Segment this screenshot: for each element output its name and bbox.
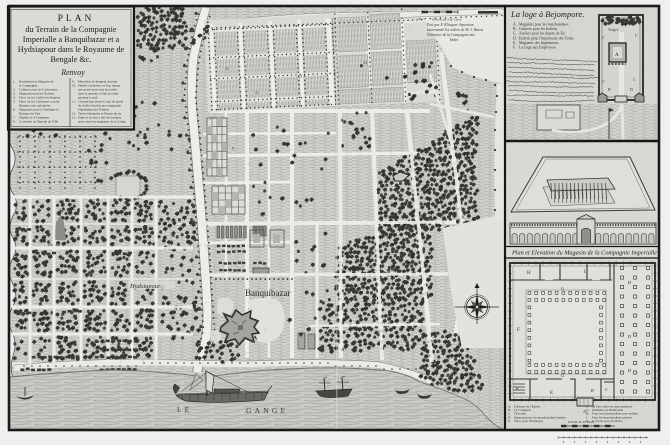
- svg-text:A.: A.: [513, 23, 517, 27]
- svg-text:assermenté les ordres de M. J.: assermenté les ordres de M. J. Baron: [427, 28, 483, 32]
- svg-text:C: C: [605, 387, 608, 392]
- svg-text:D: D: [630, 87, 633, 92]
- svg-text:F: F: [517, 328, 520, 333]
- svg-text:10.: 10.: [72, 84, 76, 88]
- svg-text:Corbanite ou Marché de Ville: Corbanite ou Marché de Ville: [19, 120, 59, 124]
- svg-text:PLAN: PLAN: [58, 14, 95, 24]
- svg-text:A: A: [615, 53, 619, 58]
- svg-text:E: E: [550, 391, 553, 396]
- svg-text:Ateliers pour les depots de Fe: Ateliers pour les depots de Fer: [519, 32, 566, 36]
- svg-text:Imperialle a Banquibazar et a: Imperialle a Banquibazar et a: [23, 35, 120, 44]
- svg-text:F.: F.: [513, 46, 516, 50]
- svg-text:La loge à Bejompore.: La loge à Bejompore.: [510, 9, 584, 19]
- svg-text:Echelle de 40 toises: Echelle de 40 toises: [567, 420, 595, 424]
- svg-text:GANGE: GANGE: [246, 406, 288, 415]
- svg-text:B: B: [591, 388, 594, 393]
- svg-text:Endroit pour l'imprimerie des: Endroit pour l'imprimerie des Toiles: [519, 36, 574, 40]
- svg-text:Cultures pour les Indiens: Cultures pour les Indiens: [519, 27, 558, 31]
- svg-text:Magazins des Imprimeurs: Magazins des Imprimeurs: [519, 41, 559, 45]
- svg-text:B.: B.: [513, 27, 517, 31]
- svg-text:11: 11: [225, 66, 229, 71]
- svg-text:Hydsiapour: Hydsiapour: [129, 283, 161, 290]
- svg-text:C.: C.: [513, 32, 517, 36]
- svg-text:10: 10: [185, 148, 189, 153]
- svg-text:13.: 13.: [72, 116, 76, 120]
- svg-text:D.: D.: [513, 36, 517, 40]
- svg-text:B: B: [608, 87, 611, 92]
- svg-text:14: 14: [363, 60, 367, 65]
- svg-text:Place pour Dechargez: Place pour Dechargez: [514, 419, 543, 423]
- svg-text:pour toute les magazins de la: pour toute les magazins de la Comp.: [78, 120, 126, 124]
- svg-text:Fait par F. Klinquer Arpenteur: Fait par F. Klinquer Arpenteur: [426, 23, 475, 27]
- svg-text:Hydsiapour dans le Royaume de: Hydsiapour dans le Royaume de: [18, 45, 125, 54]
- svg-text:le Sortie pour les Bales: le Sortie pour les Bales: [592, 419, 623, 423]
- svg-text:8.: 8.: [13, 120, 16, 124]
- svg-text:5.: 5.: [13, 100, 16, 104]
- svg-text:Verger: Verger: [608, 27, 619, 32]
- svg-text:Indes: Indes: [449, 38, 459, 42]
- svg-text:C: C: [602, 35, 605, 40]
- svg-text:Echelle de 4 au Lieue: Echelle de 4 au Lieue: [431, 18, 462, 22]
- svg-text:E.: E.: [513, 41, 516, 45]
- svg-text:1.: 1.: [13, 80, 16, 84]
- svg-text:11.: 11.: [72, 100, 76, 104]
- svg-text:Banquibazar: Banquibazar: [245, 288, 290, 298]
- svg-text:Magazins pour les marchandises: Magazins pour les marchandises: [519, 23, 569, 27]
- svg-text:du Terrain de la Compagnie: du Terrain de la Compagnie: [25, 25, 116, 34]
- svg-text:La Loge aux Employees: La Loge aux Employees: [519, 46, 557, 50]
- svg-text:C: C: [633, 77, 636, 82]
- svg-text:Plan et Elevation du Magasin d: Plan et Elevation du Magasin de la Compa…: [511, 250, 657, 257]
- svg-text:C: C: [635, 33, 638, 38]
- svg-text:LE: LE: [177, 405, 192, 414]
- svg-text:6.: 6.: [13, 108, 16, 112]
- svg-text:H: H: [527, 271, 531, 276]
- svg-text:Directeur de la Compagnie aux: Directeur de la Compagnie aux: [426, 33, 475, 37]
- svg-text:C: C: [602, 79, 605, 84]
- svg-text:E.: E.: [508, 419, 511, 423]
- svg-text:13: 13: [298, 74, 302, 79]
- svg-text:12: 12: [255, 90, 259, 95]
- svg-text:Renvoy: Renvoy: [60, 68, 85, 77]
- svg-text:Bengale &c.: Bengale &c.: [51, 55, 92, 64]
- svg-text:9: 9: [232, 146, 234, 151]
